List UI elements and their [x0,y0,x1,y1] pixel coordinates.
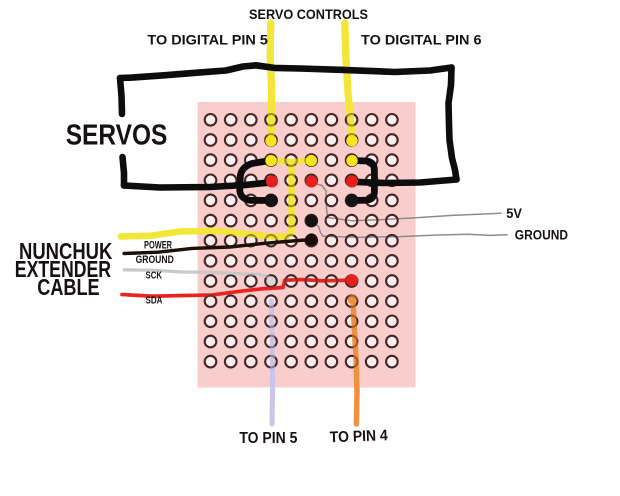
svg-text:GROUND: GROUND [136,254,174,266]
svg-text:GROUND: GROUND [515,228,568,243]
svg-text:POWER: POWER [144,239,172,251]
svg-text:TO PIN 5: TO PIN 5 [239,430,297,447]
svg-text:TO DIGITAL PIN 5: TO DIGITAL PIN 5 [147,31,268,47]
svg-text:TO DIGITAL PIN 6: TO DIGITAL PIN 6 [361,31,482,47]
svg-text:SDA: SDA [146,295,163,306]
svg-text:TO PIN 4: TO PIN 4 [329,427,388,446]
svg-text:SERVO CONTROLS: SERVO CONTROLS [249,6,368,22]
svg-text:5V: 5V [506,206,522,221]
svg-text:SERVOS: SERVOS [66,120,168,152]
svg-text:CABLE: CABLE [37,274,99,300]
svg-text:SCK: SCK [146,271,163,282]
